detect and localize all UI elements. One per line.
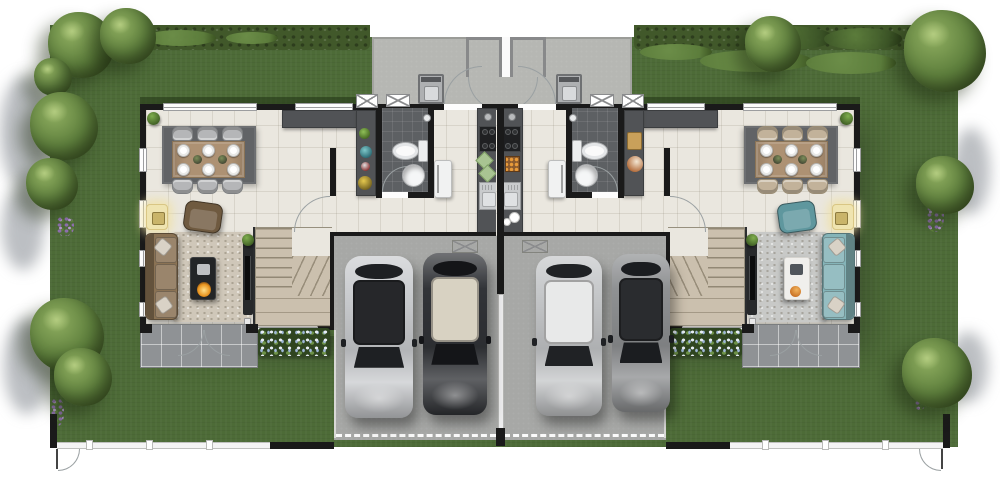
sofa-cushion [823, 264, 845, 290]
car-roof [544, 280, 594, 344]
car-roof [619, 278, 663, 341]
washbasin [575, 164, 598, 187]
stair-landing [256, 296, 333, 327]
fence-post [882, 440, 889, 450]
flower-bed [258, 328, 330, 356]
window-rear-dining [743, 103, 837, 111]
toilet-tank [418, 140, 428, 162]
plate [785, 144, 798, 157]
toilet [392, 142, 419, 160]
stair-winders [667, 256, 708, 296]
flower-bed [670, 328, 742, 356]
dining-chair [172, 126, 193, 141]
front-fence-dark [270, 442, 334, 449]
fence-post [822, 440, 829, 450]
dining-chair [807, 126, 828, 141]
bathroom-wall-left [618, 108, 624, 198]
party-fence [498, 294, 504, 430]
plate [760, 163, 773, 176]
car-left-garage-bay2-black [423, 253, 487, 415]
window-side-1 [139, 148, 147, 172]
car-mirror [532, 338, 537, 346]
dining-chair [782, 179, 803, 194]
front-fence-dark [666, 442, 730, 449]
shower-head-icon [569, 114, 577, 122]
plate [810, 163, 823, 176]
fence-post [86, 440, 93, 450]
table-centerpiece [193, 155, 202, 164]
vent-window-icon [356, 94, 378, 108]
armchair [182, 200, 224, 235]
kitchen-sink [479, 182, 497, 210]
fruit-bowl [790, 286, 801, 297]
dining-chair [222, 179, 243, 194]
car-mirror [341, 339, 346, 347]
porch-wall-stub [140, 324, 152, 333]
plate [785, 163, 798, 176]
party-wall [497, 104, 504, 294]
spice-box [505, 156, 520, 172]
gate-arc-left [58, 449, 80, 471]
boundary-wall-stub-left [50, 414, 57, 448]
table-centerpiece [798, 155, 807, 164]
garage-column-marker [522, 240, 548, 253]
sofa-backrest [846, 234, 854, 319]
tv-screen [245, 256, 250, 300]
porch-wall-stub [848, 324, 860, 333]
tree [30, 92, 98, 160]
tv-console [747, 242, 757, 315]
faucet-icon [508, 113, 516, 121]
plate [202, 163, 215, 176]
kitchen-counter-rear [642, 110, 718, 128]
refrigerator [548, 160, 566, 198]
hedge-bush [226, 32, 278, 44]
kitchen-counter-rear [282, 110, 358, 128]
stair-winders [292, 256, 333, 296]
tree [34, 58, 72, 96]
gate-arc-right [919, 449, 941, 471]
tree [100, 8, 156, 64]
bread-tray [627, 132, 642, 150]
car-rear-window [546, 264, 592, 278]
car-mirror [486, 336, 491, 344]
dining-chair [807, 179, 828, 194]
sofa-backrest [146, 234, 154, 319]
hall-wall-upper [664, 148, 670, 196]
plate [227, 163, 240, 176]
faucet-icon [484, 113, 492, 121]
hall-wall-upper [330, 148, 336, 196]
fruit-plate [627, 156, 643, 172]
window-side-2 [853, 200, 861, 228]
kitchen-sink [503, 182, 521, 210]
counter-jar [361, 162, 370, 171]
tv-console [243, 242, 253, 315]
car-rear-window [621, 262, 662, 276]
car-mirror [412, 339, 417, 347]
dining-chair [782, 126, 803, 141]
lamp-side-table [146, 204, 168, 230]
tree [745, 16, 801, 72]
stair-flight [256, 228, 292, 296]
lamp-side-table [832, 204, 854, 230]
cooktop [503, 126, 521, 152]
counter-plate [503, 218, 511, 226]
fence-post [206, 440, 213, 450]
sofa [145, 233, 178, 320]
corner-plant [840, 112, 853, 125]
staircase [668, 227, 745, 326]
plate [227, 144, 240, 157]
sofa-cushion [155, 264, 177, 290]
shower-head-icon [423, 114, 431, 122]
armchair [776, 200, 818, 235]
plate [202, 144, 215, 157]
dining-chair [197, 179, 218, 194]
car-windshield [545, 346, 594, 367]
corner-plant [147, 112, 160, 125]
car-windshield [620, 342, 663, 363]
stair-flight [708, 228, 744, 296]
tv-screen [750, 256, 755, 300]
car-roof [431, 277, 480, 342]
coffee-table [784, 257, 810, 300]
tree [26, 158, 78, 210]
bathroom-door-gap [382, 192, 408, 198]
tree [54, 348, 112, 406]
kitchen-counter-side [624, 110, 644, 196]
fence-post [146, 440, 153, 450]
car-mirror [669, 335, 674, 343]
bathroom-wall-left [376, 108, 382, 198]
car-right-garage-bay1-silver [536, 256, 602, 416]
stair-landing [667, 296, 744, 327]
car-rear-window [355, 264, 403, 279]
car-windshield [431, 344, 478, 365]
plant [242, 234, 254, 246]
dining-chair [197, 126, 218, 141]
fence-post [762, 440, 769, 450]
coffee-table [190, 257, 216, 300]
tree [904, 10, 986, 92]
plate [177, 163, 190, 176]
driveway-gate-line [336, 434, 496, 437]
table-centerpiece [218, 155, 227, 164]
car-windshield [354, 347, 404, 368]
top-margin-patch [370, 0, 634, 37]
driveway-gate-line [504, 434, 664, 437]
toilet [581, 142, 608, 160]
cooktop [479, 126, 497, 152]
car-mirror [419, 336, 424, 344]
car-roof [353, 280, 405, 345]
counter-bowl [360, 146, 372, 158]
tree [902, 338, 972, 408]
tree [916, 156, 974, 214]
sofa [822, 233, 855, 320]
dining-chair [757, 126, 778, 141]
dining-chair [222, 126, 243, 141]
floor-plan-scene [0, 0, 1000, 485]
dining-chair [172, 179, 193, 194]
plate [760, 144, 773, 157]
staircase [255, 227, 332, 326]
car-rear-window [433, 261, 478, 276]
patio-center-gap [502, 37, 510, 77]
washbasin [402, 164, 425, 187]
car-left-garage-bay1-silver [345, 256, 413, 418]
table-decor [197, 264, 210, 275]
vent-window-icon [622, 94, 644, 108]
plate [177, 144, 190, 157]
table-centerpiece [773, 155, 782, 164]
plant [746, 234, 758, 246]
driveway-curb [334, 330, 336, 438]
table-decor [790, 264, 803, 275]
refrigerator [434, 160, 452, 198]
purple-flowers [56, 216, 74, 236]
dining-chair [757, 179, 778, 194]
porch-wall-stub [742, 324, 754, 333]
stair-upper-floor [667, 228, 708, 256]
car-mirror [608, 335, 613, 343]
garage-column-marker [452, 240, 478, 253]
counter-plant [359, 128, 370, 139]
counter-fruit-bowl [358, 176, 372, 190]
porch-wall-stub [246, 324, 258, 333]
side-gate-right [941, 449, 943, 469]
plate [810, 144, 823, 157]
window-side-1 [853, 148, 861, 172]
hedge-bush [824, 28, 902, 50]
stair-upper-floor [292, 228, 333, 256]
car-right-garage-bay2-gray [612, 254, 670, 412]
boundary-wall-stub-right [943, 414, 950, 448]
fireplace-flame [197, 282, 211, 297]
party-wall-stub [496, 428, 505, 446]
window-rear-dining [163, 103, 257, 111]
hedge-bush [806, 52, 896, 74]
car-mirror [601, 338, 606, 346]
bathroom-door-gap [592, 192, 618, 198]
